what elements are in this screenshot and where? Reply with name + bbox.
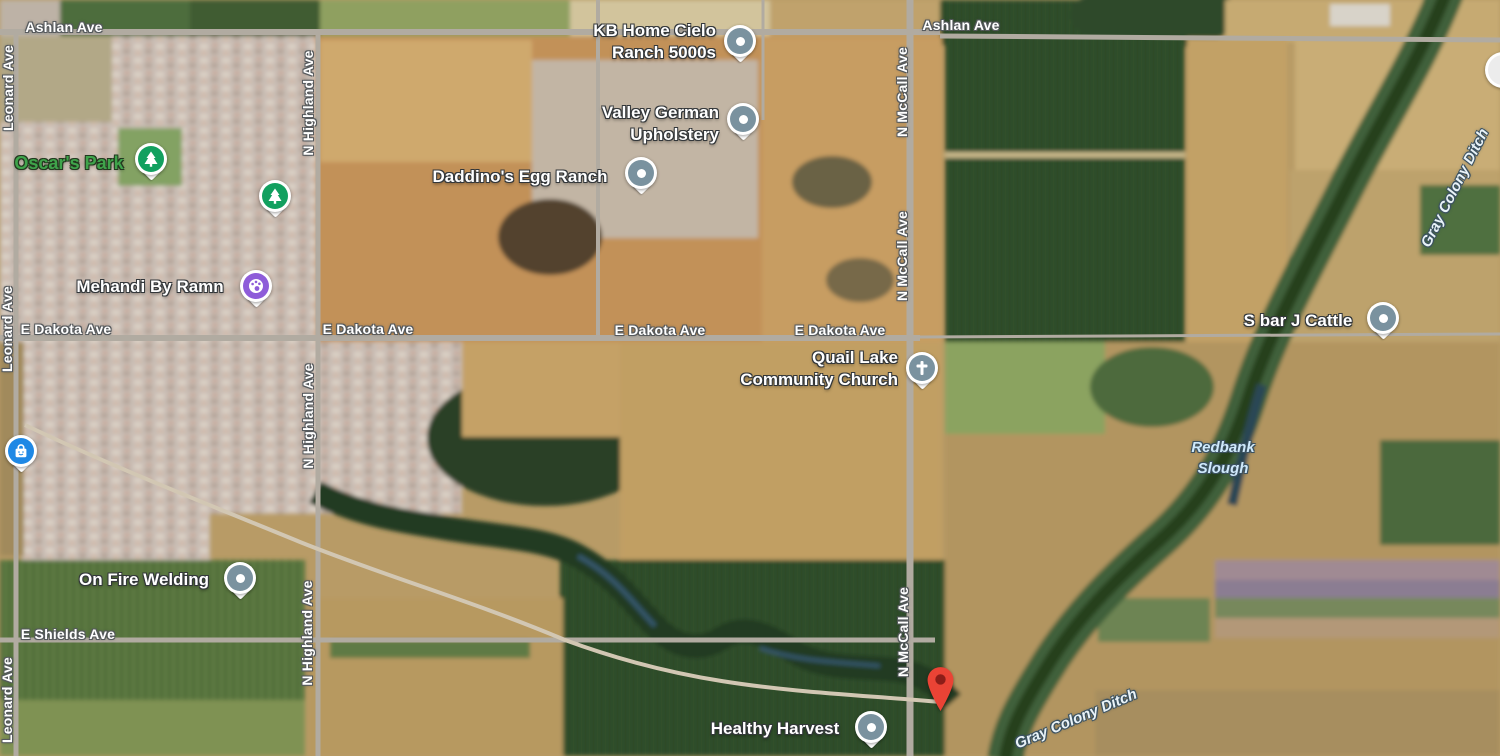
road-label-mccall-ave-1: N McCall Ave (894, 47, 910, 137)
water-label-line: Slough (1191, 458, 1254, 479)
poi-label-quail-lake-community-church[interactable]: Quail Lake Community Church (740, 347, 898, 391)
poi-pin-daddinos-egg-ranch[interactable] (625, 157, 657, 189)
shopping-bag-icon (12, 442, 30, 460)
road-label-dakota-ave-1: E Dakota Ave (21, 321, 112, 337)
red-pin-icon (927, 666, 954, 712)
poi-label-line: Upholstery (602, 124, 719, 146)
road-label-dakota-ave-4: E Dakota Ave (795, 322, 886, 338)
road-label-highland-ave-1: N Highland Ave (300, 50, 316, 155)
road-label-ashlan-ave-2: Ashlan Ave (922, 17, 999, 33)
palette-icon (247, 277, 265, 295)
poi-label-line: Quail Lake (740, 347, 898, 369)
road-label-leonard-ave-3: Leonard Ave (0, 657, 15, 743)
poi-pin-quail-lake-community-church[interactable] (906, 352, 938, 384)
poi-label-daddinos-egg-ranch[interactable]: Daddino's Egg Ranch (433, 166, 608, 188)
road-label-leonard-ave-1: Leonard Ave (0, 45, 16, 131)
dot-icon (236, 574, 245, 583)
poi-label-mehandi-by-ramn[interactable]: Mehandi By Ramn (76, 276, 223, 298)
poi-label-valley-german-upholstery[interactable]: Valley German Upholstery (602, 102, 719, 146)
poi-label-kb-home-cielo-ranch[interactable]: KB Home Cielo Ranch 5000s (593, 20, 716, 64)
destination-marker[interactable] (927, 666, 954, 712)
road-label-leonard-ave-2: Leonard Ave (0, 286, 15, 372)
poi-label-oscars-park[interactable]: Oscar's Park (14, 152, 123, 174)
road-label-highland-ave-3: N Highland Ave (299, 580, 315, 685)
dot-icon (1379, 314, 1388, 323)
cross-icon (913, 359, 931, 377)
poi-label-line: Valley German (602, 102, 719, 124)
poi-pin-clipped[interactable] (1485, 52, 1500, 88)
park-pin-oscars-park[interactable] (135, 143, 167, 175)
dot-icon (867, 723, 876, 732)
poi-label-line: Community Church (740, 369, 898, 391)
poi-label-on-fire-welding[interactable]: On Fire Welding (79, 569, 209, 591)
poi-pin-s-bar-j-cattle[interactable] (1367, 302, 1399, 334)
poi-label-line: KB Home Cielo (593, 20, 716, 42)
road-label-shields-ave: E Shields Ave (21, 626, 115, 642)
road-label-mccall-ave-3: N McCall Ave (895, 587, 911, 677)
dot-icon (736, 37, 745, 46)
water-label-line: Redbank (1191, 437, 1254, 458)
poi-label-healthy-harvest[interactable]: Healthy Harvest (711, 718, 840, 740)
tree-icon (142, 150, 160, 168)
poi-pin-valley-german-upholstery[interactable] (727, 103, 759, 135)
road-label-dakota-ave-2: E Dakota Ave (323, 321, 414, 337)
poi-pin-healthy-harvest[interactable] (855, 711, 887, 743)
poi-pin-on-fire-welding[interactable] (224, 562, 256, 594)
poi-label-line: Ranch 5000s (593, 42, 716, 64)
dot-icon (637, 169, 646, 178)
water-label-redbank-slough: Redbank Slough (1191, 437, 1254, 479)
road-label-mccall-ave-2: N McCall Ave (894, 211, 910, 301)
poi-pin-mehandi-by-ramn[interactable] (240, 270, 272, 302)
road-label-dakota-ave-3: E Dakota Ave (615, 322, 706, 338)
road-label-ashlan-ave-1: Ashlan Ave (25, 19, 102, 35)
shopping-pin[interactable] (5, 435, 37, 467)
road-label-highland-ave-2: N Highland Ave (300, 363, 316, 468)
poi-label-s-bar-j-cattle[interactable]: S bar J Cattle (1244, 310, 1353, 332)
map-canvas[interactable]: Ashlan Ave Ashlan Ave E Dakota Ave E Dak… (0, 0, 1500, 756)
poi-pin-kb-home-cielo-ranch[interactable] (724, 25, 756, 57)
park-pin-unlabeled[interactable] (259, 180, 291, 212)
tree-icon (266, 187, 284, 205)
dot-icon (739, 115, 748, 124)
